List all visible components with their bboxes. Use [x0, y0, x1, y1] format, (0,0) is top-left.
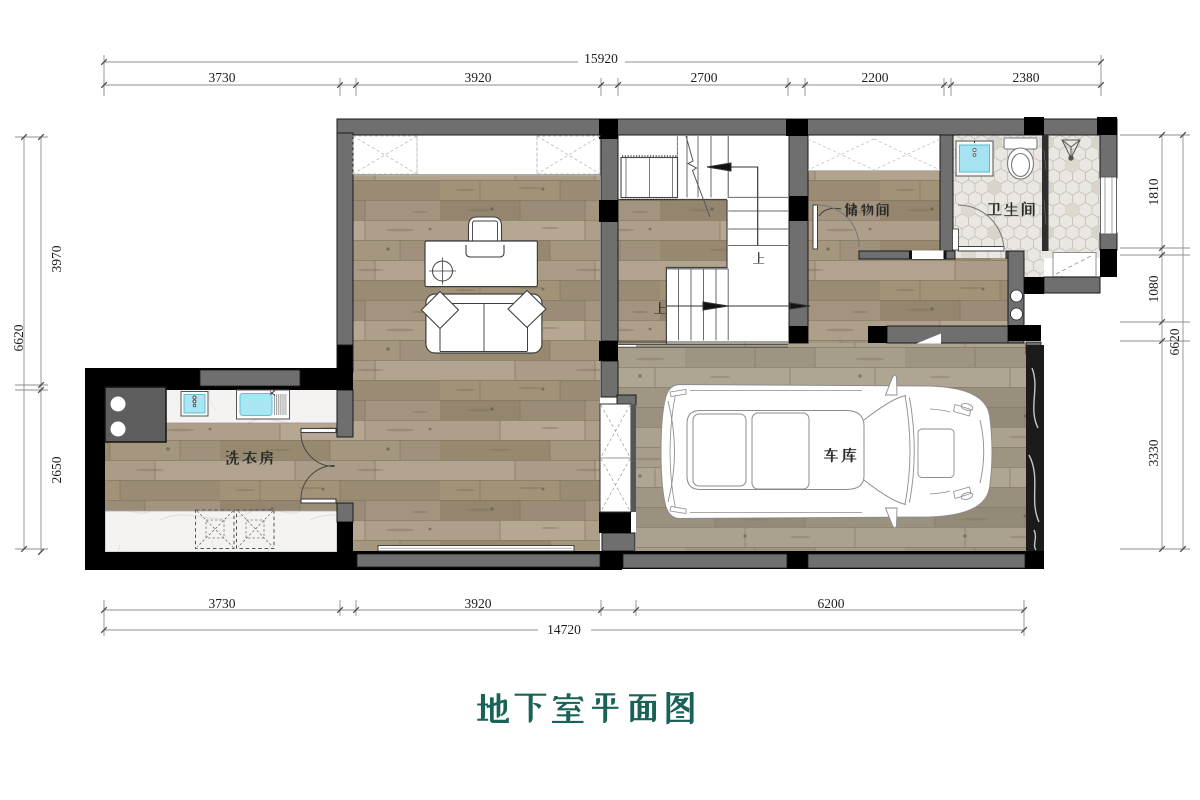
svg-text:3330: 3330: [1146, 439, 1161, 466]
svg-text:6620: 6620: [1167, 328, 1182, 355]
svg-text:2700: 2700: [691, 70, 718, 85]
svg-text:2650: 2650: [49, 456, 64, 483]
svg-text:3730: 3730: [209, 596, 236, 611]
svg-text:6200: 6200: [818, 596, 845, 611]
svg-text:6620: 6620: [11, 324, 26, 351]
svg-text:1810: 1810: [1146, 178, 1161, 205]
svg-text:2200: 2200: [862, 70, 889, 85]
svg-text:3970: 3970: [49, 245, 64, 272]
svg-text:2380: 2380: [1013, 70, 1040, 85]
svg-text:1080: 1080: [1146, 275, 1161, 302]
svg-text:15920: 15920: [584, 51, 618, 66]
svg-text:3920: 3920: [465, 596, 492, 611]
svg-text:3920: 3920: [465, 70, 492, 85]
svg-text:3730: 3730: [209, 70, 236, 85]
svg-text:14720: 14720: [547, 622, 581, 637]
